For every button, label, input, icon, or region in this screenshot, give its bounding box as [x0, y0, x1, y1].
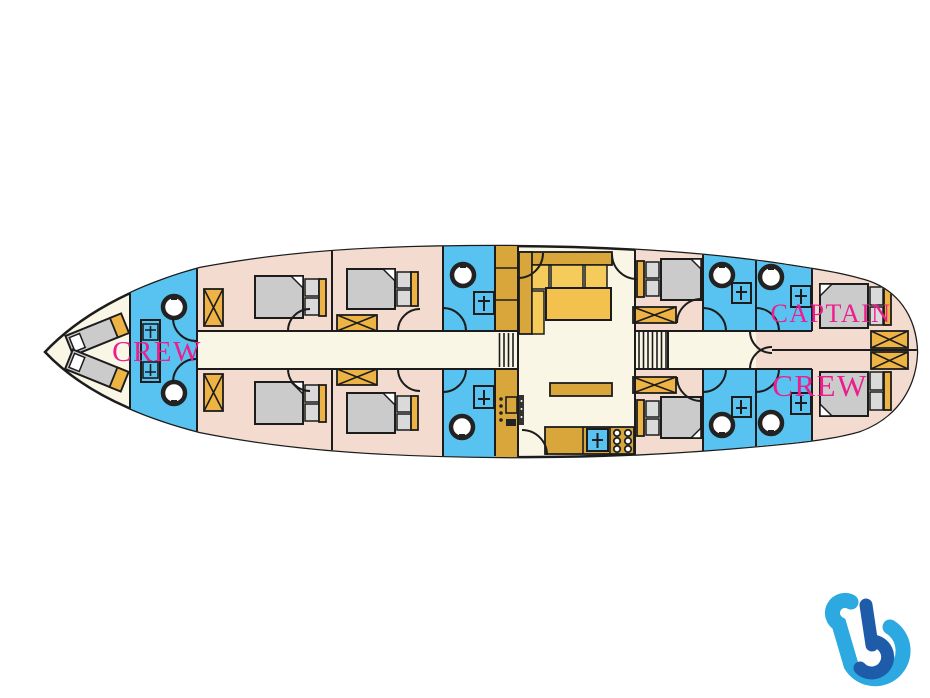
label-captain: CAPTAIN: [770, 299, 891, 328]
bench-seat: [550, 383, 612, 396]
toilet-icon: [451, 416, 473, 440]
wardrobe-icon: [633, 377, 676, 393]
toilet-icon: [163, 294, 185, 318]
toilet-icon: [452, 262, 474, 286]
wardrobe-icon: [871, 331, 908, 348]
wardrobe-icon: [633, 307, 676, 323]
label-crew-aft: CREW: [772, 368, 868, 403]
toilet-icon: [711, 262, 733, 286]
deck-plan-page: CREW CAPTAIN CREW: [0, 0, 930, 698]
galley-sink-icon: [587, 429, 608, 451]
toilet-icon: [711, 414, 733, 438]
label-crew-bow: CREW: [112, 336, 202, 368]
b-logo: [832, 600, 903, 678]
room-zones: [130, 180, 926, 524]
galley: [545, 427, 634, 454]
wardrobe-icon: [337, 315, 377, 331]
sink-icon: [474, 292, 494, 314]
corridor: [197, 331, 756, 369]
locker-column-bottom: [495, 369, 518, 520]
toilet-icon: [760, 264, 782, 288]
wardrobe-icon: [204, 374, 223, 411]
wardrobe-icon: [204, 289, 223, 326]
sink-icon: [474, 386, 494, 408]
locker-column-top: [495, 180, 518, 331]
b-logo-dark-b: [860, 605, 888, 673]
toilet-icon: [760, 412, 782, 436]
double-bed: [637, 259, 701, 300]
wardrobe-icon: [871, 352, 908, 369]
toilet-icon: [163, 382, 185, 406]
wardrobe-icon: [337, 369, 377, 385]
sink-icon: [732, 397, 751, 417]
double-bed: [637, 397, 701, 438]
deck-plan: CREW CAPTAIN CREW: [0, 0, 930, 698]
sink-icon: [732, 283, 751, 303]
companionway-stairs-aft: [639, 331, 666, 369]
salon-table: [546, 288, 611, 320]
